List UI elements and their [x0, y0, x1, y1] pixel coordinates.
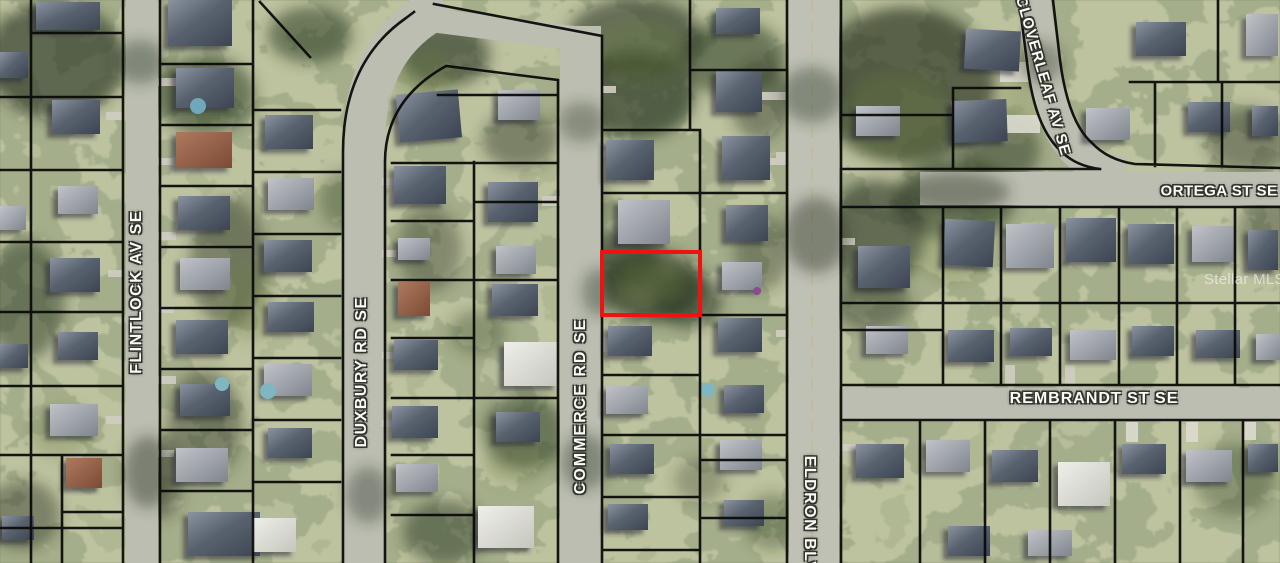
street-label-commerce-rd-se: COMMERCE RD SE [572, 318, 590, 494]
street-label-rembrandt-st-se: REMBRANDT ST SE [1010, 390, 1179, 408]
street-label-ortega-st-se: ORTEGA ST SE [1160, 183, 1277, 200]
street-label-flintlock-av-se: FLINTLOCK AV SE [128, 210, 146, 374]
street-label-duxbury-rd-se: DUXBURY RD SE [353, 296, 371, 447]
aerial-map[interactable]: FLINTLOCK AV SE DUXBURY RD SE COMMERCE R… [0, 0, 1280, 563]
street-label-eldron-blvd: ELDRON BLVD [800, 456, 818, 563]
stellar-mls-watermark: Stellar MLS [1204, 271, 1280, 288]
highlighted-parcel-outline [600, 250, 702, 317]
